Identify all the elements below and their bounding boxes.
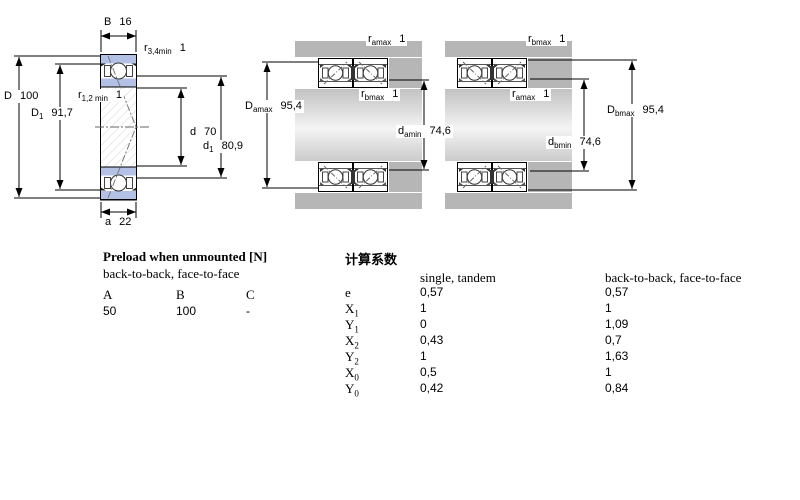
dim-label-d1: d180,9 bbox=[201, 140, 245, 153]
preload-col-A: A bbox=[103, 287, 176, 303]
bearing-datasheet-page: B16 r3,4min1 D100 D191,7 r1,2 min1 d70 d… bbox=[0, 0, 800, 500]
dim-label-B: B16 bbox=[102, 16, 134, 29]
ball-top bbox=[111, 63, 127, 79]
preload-table: Preload when unmounted [N] back-to-back,… bbox=[103, 247, 333, 327]
dim-label-r12min: r1,2 min1 bbox=[76, 89, 124, 102]
dim-label-d: d70 bbox=[188, 126, 218, 139]
preload-col-B: B bbox=[176, 287, 246, 303]
dim-label-ramax-mid: ramax1 bbox=[366, 33, 407, 46]
dim-label-D: D100 bbox=[2, 90, 40, 103]
preload-title: Preload when unmounted [N] bbox=[103, 249, 267, 265]
dim-label-ramax-right: ramax1 bbox=[510, 88, 551, 101]
factors-col-single-tandem: single, tandem bbox=[420, 270, 605, 286]
calculation-factors-table: 计算系数 single, tandem back-to-back, face-t… bbox=[345, 247, 785, 407]
dim-label-r34min: r3,4min1 bbox=[142, 42, 188, 55]
preload-value-row: 50 100 - bbox=[103, 304, 250, 318]
factors-header-row: single, tandem back-to-back, face-to-fac… bbox=[345, 270, 741, 286]
dim-label-dbmin: dbmin74,6 bbox=[546, 136, 603, 149]
factors-row-X1: X1 1 1 bbox=[345, 301, 612, 319]
dim-label-Damax: Damax95,4 bbox=[243, 100, 304, 113]
dim-label-damin: damin74,6 bbox=[396, 125, 453, 138]
dim-label-rbmax-right: rbmax1 bbox=[526, 33, 567, 46]
factors-col-back-to-back: back-to-back, face-to-face bbox=[605, 270, 741, 286]
preload-subtitle: back-to-back, face-to-face bbox=[103, 266, 239, 282]
preload-value-B: 100 bbox=[176, 304, 246, 318]
factors-row-Y1: Y1 0 1,09 bbox=[345, 317, 628, 335]
factors-row-Y0: Y0 0,42 0,84 bbox=[345, 381, 628, 399]
dim-label-a: a22 bbox=[103, 216, 133, 229]
factors-title: 计算系数 bbox=[345, 249, 397, 268]
shaft-area bbox=[445, 89, 572, 161]
factors-row-X2: X2 0,43 0,7 bbox=[345, 333, 622, 351]
factors-row-X0: X0 0,5 1 bbox=[345, 365, 612, 383]
ball-bottom bbox=[111, 175, 127, 191]
factors-row-Y2: Y2 1 1,63 bbox=[345, 349, 628, 367]
dim-label-D1: D191,7 bbox=[29, 107, 75, 120]
preload-header-row: A B C bbox=[103, 287, 255, 303]
preload-col-C: C bbox=[246, 287, 255, 303]
factors-row-e: e 0,57 0,57 bbox=[345, 285, 628, 303]
dim-label-rbmax-mid: rbmax1 bbox=[359, 88, 400, 101]
mounted-pair-face-to-face bbox=[445, 41, 572, 209]
preload-value-C: - bbox=[246, 304, 250, 318]
preload-value-A: 50 bbox=[103, 304, 176, 318]
dim-label-Dbmax: Dbmax95,4 bbox=[605, 104, 666, 117]
